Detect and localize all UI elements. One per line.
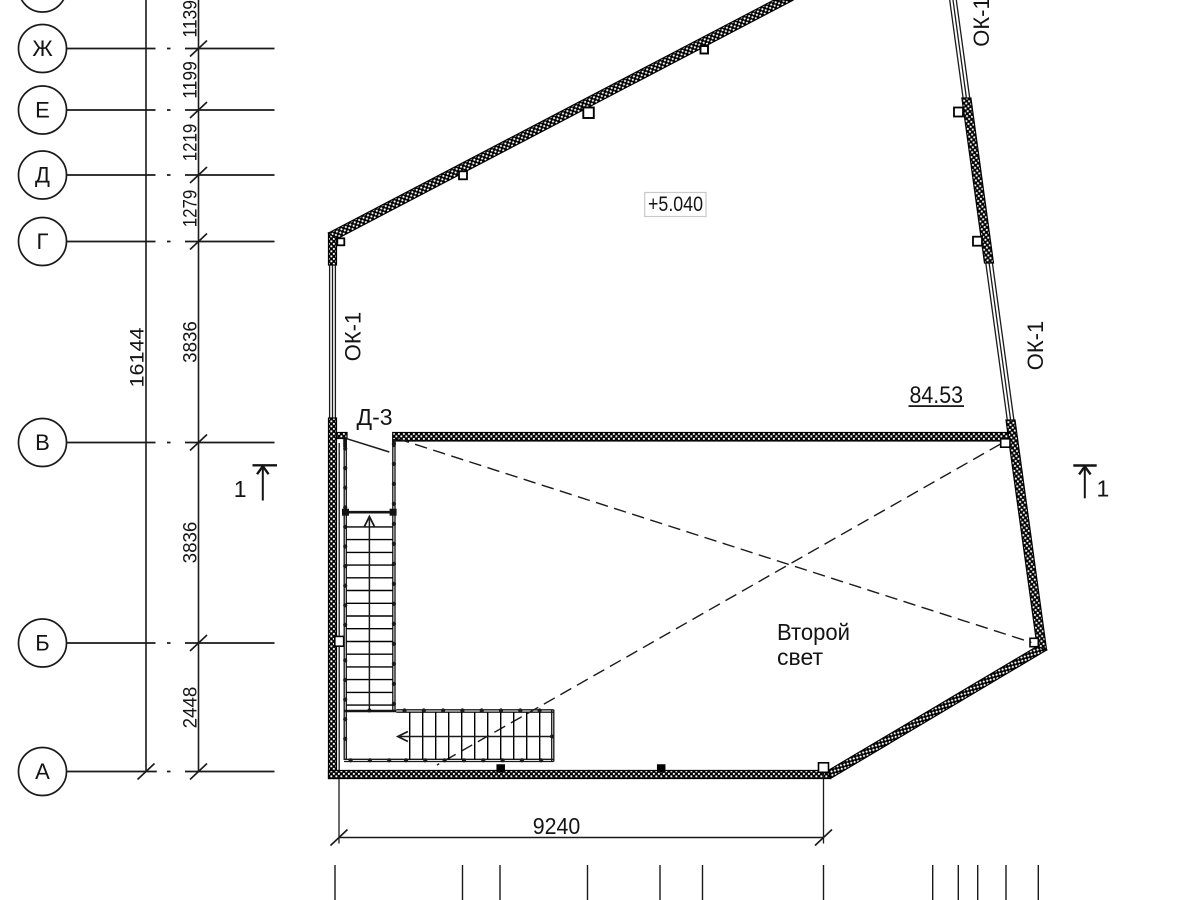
svg-text:свет: свет [777,644,823,670]
svg-text:Д-3: Д-3 [357,404,393,430]
svg-text:Б: Б [35,631,49,656]
svg-text:16144: 16144 [128,327,149,387]
svg-text:Е: Е [35,98,50,123]
svg-text:Второй: Второй [777,619,850,645]
svg-text:1: 1 [234,476,247,502]
svg-text:9240: 9240 [533,813,581,839]
svg-text:1: 1 [1097,476,1110,502]
svg-text:ОК-1: ОК-1 [969,0,994,47]
svg-text:1219: 1219 [181,124,202,162]
svg-text:1279: 1279 [181,190,202,228]
svg-text:ОК-1: ОК-1 [1023,321,1048,371]
svg-text:Д: Д [35,163,50,188]
svg-text:1199: 1199 [181,61,202,99]
svg-text:2448: 2448 [181,687,202,729]
svg-text:А: А [35,759,50,784]
svg-text:3836: 3836 [181,522,202,564]
svg-text:Ж: Ж [32,36,53,61]
svg-text:84.53: 84.53 [910,382,964,409]
svg-text:3836: 3836 [181,321,202,363]
svg-text:ОК-1: ОК-1 [341,312,366,362]
svg-text:Г: Г [37,229,49,254]
svg-text:1139: 1139 [181,0,202,38]
svg-text:+5.040: +5.040 [648,193,703,216]
svg-text:В: В [35,430,50,455]
